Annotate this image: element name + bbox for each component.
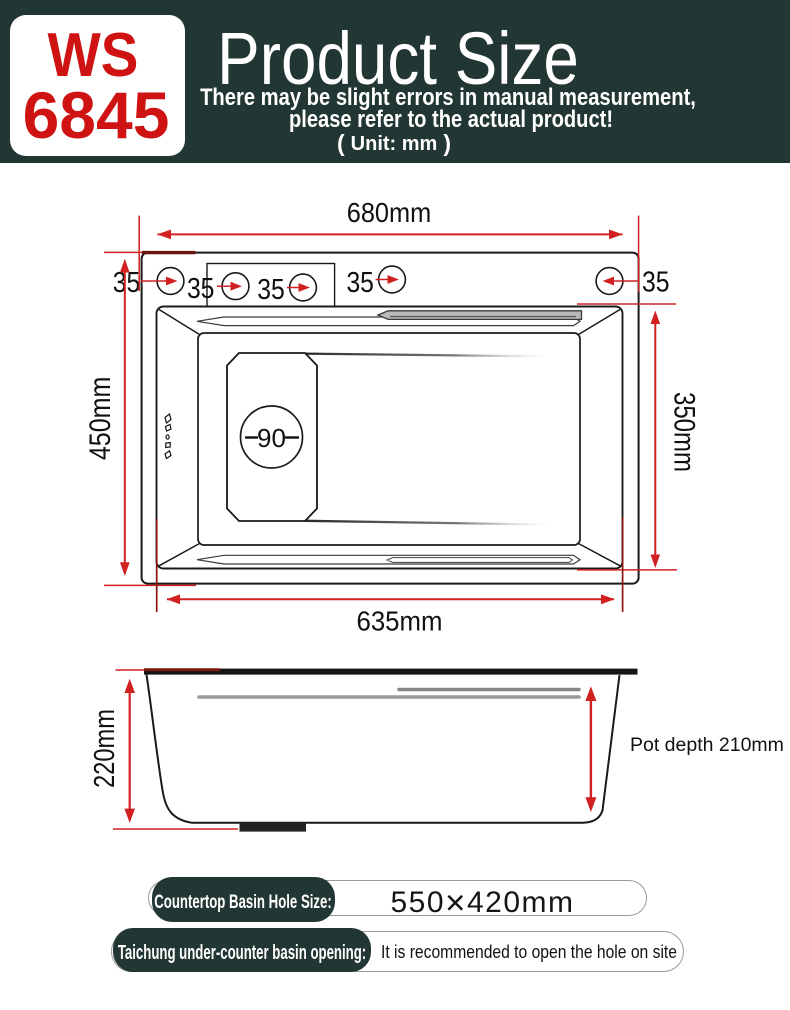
svg-text:350mm: 350mm <box>668 392 701 472</box>
svg-text:90: 90 <box>257 423 286 453</box>
svg-text:220mm: 220mm <box>89 709 121 788</box>
svg-text:450mm: 450mm <box>84 377 117 461</box>
svg-text:35: 35 <box>187 273 215 305</box>
svg-text:35: 35 <box>642 267 670 299</box>
svg-text:Pot depth 210mm: Pot depth 210mm <box>630 734 784 756</box>
svg-text:35: 35 <box>346 267 374 299</box>
svg-text:35: 35 <box>257 274 285 306</box>
svg-text:680mm: 680mm <box>347 197 432 228</box>
svg-text:635mm: 635mm <box>357 605 443 636</box>
